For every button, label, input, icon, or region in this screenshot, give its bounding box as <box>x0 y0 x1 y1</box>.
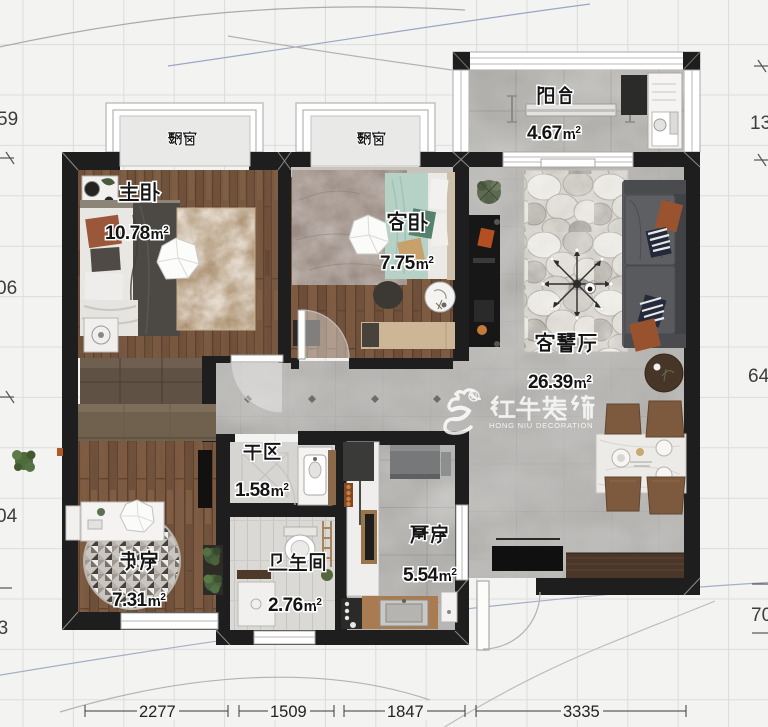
svg-text:59: 59 <box>0 109 18 130</box>
svg-text:73: 73 <box>0 618 8 639</box>
svg-text:06: 06 <box>0 278 17 299</box>
svg-text:1847: 1847 <box>387 703 424 721</box>
svg-text:2277: 2277 <box>139 703 176 721</box>
svg-text:04: 04 <box>0 506 18 527</box>
svg-text:70: 70 <box>751 605 768 626</box>
svg-text:26.39m2: 26.39m2 <box>528 372 592 393</box>
svg-text:2.76m2: 2.76m2 <box>268 595 322 616</box>
svg-text:5.54m2: 5.54m2 <box>403 565 457 586</box>
svg-text:1.58m2: 1.58m2 <box>235 480 289 501</box>
svg-text:7.31m2: 7.31m2 <box>112 590 166 611</box>
svg-text:10.78m2: 10.78m2 <box>105 223 169 244</box>
svg-text:7.75m2: 7.75m2 <box>380 253 434 274</box>
svg-text:13: 13 <box>750 113 768 134</box>
svg-text:4.67m2: 4.67m2 <box>527 123 581 144</box>
svg-text:64: 64 <box>748 366 768 387</box>
svg-text:HONG NIU DECORATION: HONG NIU DECORATION <box>489 421 593 430</box>
svg-text:1509: 1509 <box>270 703 307 721</box>
svg-text:3335: 3335 <box>563 703 600 721</box>
